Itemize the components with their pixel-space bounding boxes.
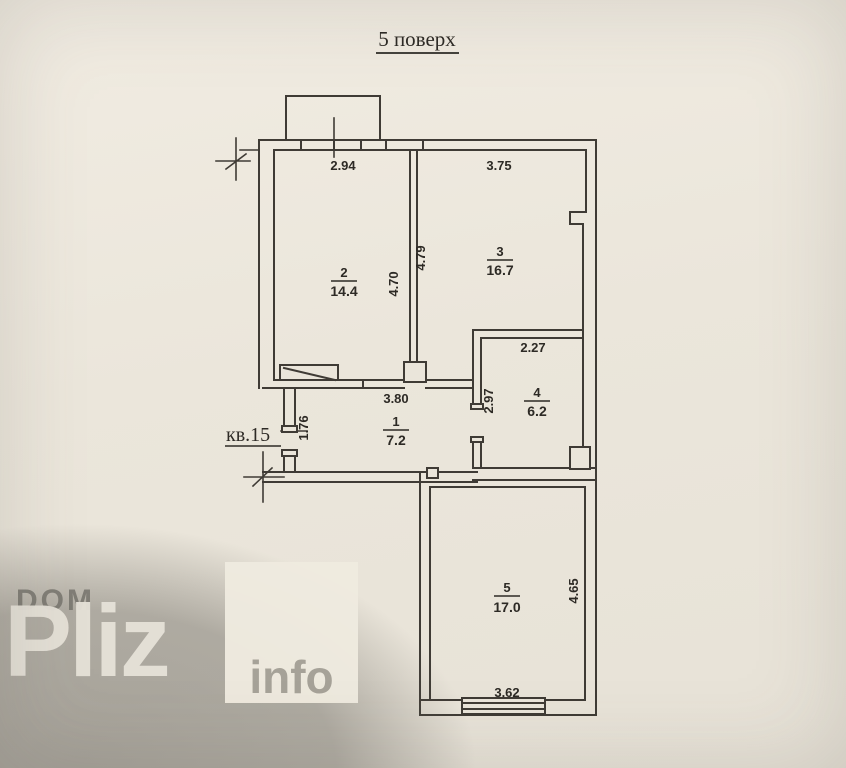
dim-hall-top: 3.80 [383,391,408,406]
room5-window [462,698,545,714]
top-wall-window-ticks [301,140,423,150]
dim-room2-right-height: 4.70 [386,271,401,296]
floor-plan-drawing: 5 поверх 2.94 3.75 4.70 4.79 2.27 2.97 3… [0,0,846,768]
room1-number: 1 [392,414,399,429]
hall-top-wall [263,380,473,388]
entrance-door-jamb-top [282,426,297,432]
apartment-number-label: кв.15 [226,424,270,446]
dim-balcony-width: 2.94 [330,158,356,173]
dim-room5-bottom: 3.62 [494,685,519,700]
room4-door-jamb-bottom [471,437,483,442]
axis-mark-bottom-left [244,452,284,502]
room4-pilaster [570,447,590,469]
photo-of-floor-plan: 5 поверх 2.94 3.75 4.70 4.79 2.27 2.97 3… [0,0,846,768]
room3-number: 3 [496,244,503,259]
entrance-door-jamb-bottom [282,450,297,456]
dim-room4-top: 2.27 [520,340,545,355]
room3-area: 16.7 [486,262,513,278]
hall-bottom-wall [263,472,477,482]
room2-number: 2 [340,265,347,280]
room2-area: 14.4 [330,283,357,299]
wall-step [427,468,438,478]
dim-room3-top: 3.75 [486,158,511,173]
dim-room5-right-height: 4.65 [566,578,581,603]
wall-pier [404,362,426,382]
axis-mark-top-left [216,138,259,180]
dim-room4-left-height: 2.97 [481,388,496,413]
room4-number: 4 [533,385,541,400]
dim-hall-left-height: 1.76 [296,415,311,440]
room1-area: 7.2 [386,432,406,448]
balcony-outline [286,96,380,140]
room4-area: 6.2 [527,403,547,419]
room5-number: 5 [503,580,510,595]
page-title: 5 поверх [378,27,456,51]
room5-corner-pier [420,700,462,715]
room5-area: 17.0 [493,599,520,615]
dim-room3-left-height: 4.79 [413,245,428,270]
